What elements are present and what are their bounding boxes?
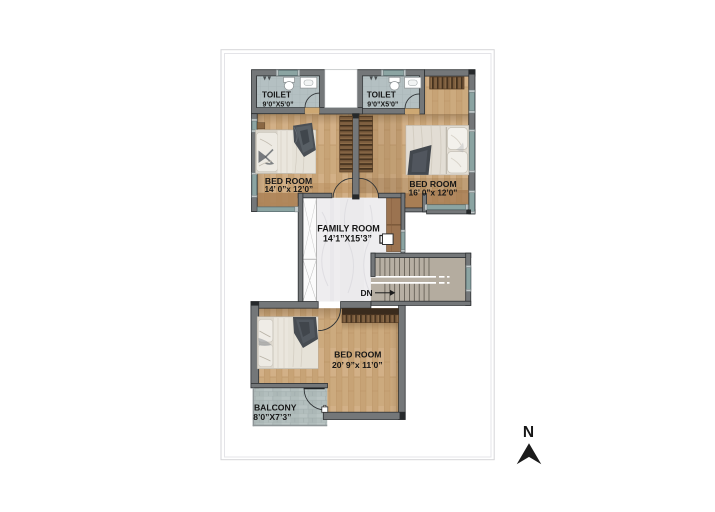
svg-text:BED ROOM: BED ROOM [334,349,381,359]
svg-text:BED ROOM: BED ROOM [409,179,456,189]
svg-text:8’0”X7’3”: 8’0”X7’3” [253,412,291,422]
svg-text:14’ 0”x 12’0”: 14’ 0”x 12’0” [264,185,313,194]
svg-text:DN: DN [361,288,373,298]
svg-text:N: N [523,424,534,441]
svg-text:TOILET: TOILET [262,90,291,99]
svg-text:14’1”X15’3”: 14’1”X15’3” [323,233,372,243]
svg-text:BALCONY: BALCONY [254,403,297,413]
svg-text:FAMILY ROOM: FAMILY ROOM [317,224,380,234]
svg-text:20’ 9”x 11’0”: 20’ 9”x 11’0” [332,360,383,370]
svg-text:TOILET: TOILET [367,90,396,99]
svg-text:9’0”X5’0”: 9’0”X5’0” [367,101,398,108]
svg-text:9’0”X5’0”: 9’0”X5’0” [263,101,294,108]
svg-text:16’ 0”x 12’0”: 16’ 0”x 12’0” [409,189,458,198]
